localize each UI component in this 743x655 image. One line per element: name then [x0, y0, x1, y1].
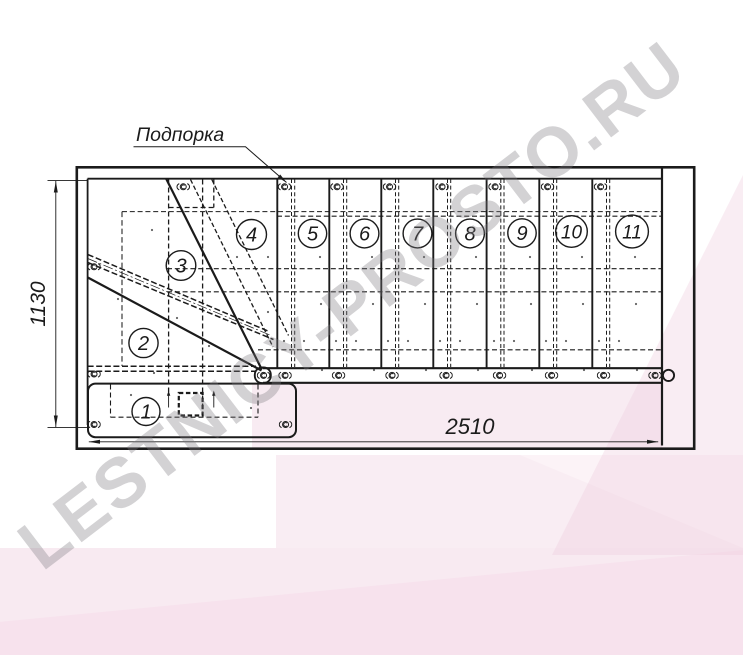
- screw-icon: [493, 372, 506, 378]
- screw-icon: [331, 184, 344, 190]
- screw-icon: [597, 372, 610, 378]
- screw-icon: [177, 184, 190, 190]
- step-balloon-11: 11: [616, 215, 649, 248]
- step-label: 5: [307, 224, 319, 246]
- screw-icon: [383, 184, 396, 190]
- step-label: 4: [246, 225, 257, 247]
- dimension-width-value: 2510: [445, 414, 496, 439]
- step-balloon-3: 3: [166, 251, 196, 281]
- screw-icon: [440, 372, 453, 378]
- step-balloon-5: 5: [298, 219, 326, 247]
- screw-icon: [649, 372, 662, 378]
- screw-icon: [278, 184, 291, 190]
- step-label: 3: [175, 256, 186, 278]
- step-balloon-10: 10: [556, 216, 588, 248]
- extension-lines: [48, 181, 88, 428]
- step-balloon-4: 4: [237, 220, 267, 250]
- step-label: 2: [137, 333, 149, 355]
- support-callout: Подпорка: [134, 124, 287, 183]
- step-label: 11: [622, 223, 642, 244]
- screw-icon: [386, 372, 399, 378]
- screw-icon: [594, 184, 607, 190]
- dimension-height-value: 1130: [27, 281, 50, 326]
- step-label: 10: [561, 223, 583, 244]
- callout-text: Подпорка: [136, 124, 224, 146]
- screw-icon: [545, 372, 558, 378]
- screw-icon: [279, 421, 292, 427]
- screw-icon: [332, 372, 345, 378]
- screw-icon: [88, 421, 101, 427]
- stringer-right-cap: [663, 370, 674, 381]
- callout-leader-line: [134, 147, 287, 183]
- step-balloon-2: 2: [129, 328, 158, 357]
